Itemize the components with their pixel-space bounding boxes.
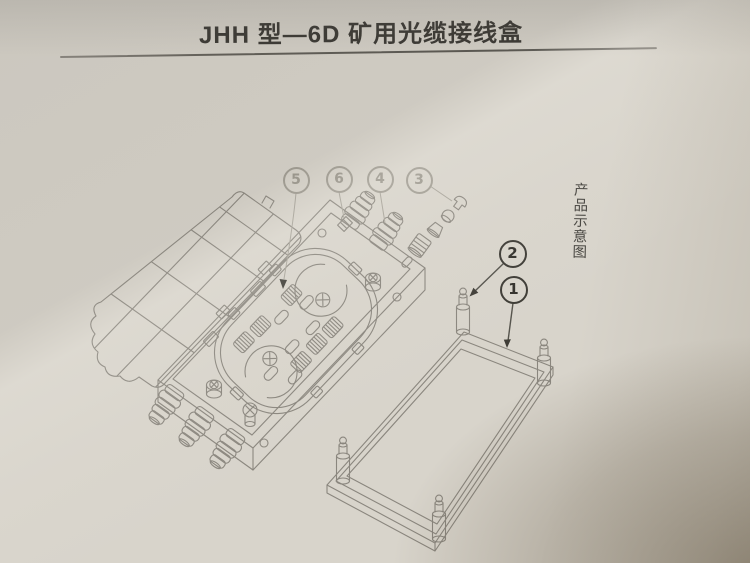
splice-tray — [190, 224, 402, 439]
cover-grid — [88, 183, 320, 397]
callout-3: 3 — [406, 167, 433, 194]
gland-dome — [440, 208, 457, 225]
cable-gland — [143, 382, 186, 429]
leader-line-4 — [380, 192, 385, 223]
corner-post — [433, 495, 446, 542]
leader-line-5 — [284, 193, 296, 279]
pan-screw — [243, 403, 257, 427]
cover-lid — [88, 183, 320, 397]
tray-slot — [298, 294, 315, 311]
cover-tab — [262, 196, 274, 208]
fiber-guide-arc — [284, 257, 354, 327]
callout-6: 6 — [326, 166, 353, 193]
cable-gland — [204, 426, 247, 473]
leader-line-1 — [508, 303, 513, 341]
gland-cap — [451, 194, 469, 212]
tray-screw — [313, 290, 333, 310]
cable-gland — [173, 404, 216, 451]
coil-spring — [306, 333, 329, 356]
gland-nut — [407, 233, 432, 259]
corner-post — [457, 288, 470, 335]
tray-slot — [284, 338, 301, 355]
cable-gland — [339, 187, 380, 232]
coil-spring — [233, 331, 256, 354]
coil-spring — [249, 315, 272, 338]
leader-line-3 — [430, 186, 452, 201]
tray-slot — [263, 365, 280, 382]
callout-4: 4 — [367, 166, 394, 193]
rim-slot — [401, 256, 414, 269]
tray-slot — [273, 309, 290, 326]
coil-spring — [290, 351, 313, 374]
exploded-diagram — [0, 0, 750, 563]
arrowhead-1 — [504, 339, 511, 348]
product-caption: 产品示意图 — [568, 182, 591, 260]
hex-standoff — [207, 380, 222, 398]
mount-hole — [318, 229, 326, 237]
gland-cone — [426, 221, 444, 239]
corner-post — [337, 437, 350, 484]
callout-1: 1 — [500, 276, 528, 304]
leader-line-6 — [339, 192, 344, 218]
coil-spring — [321, 316, 344, 339]
mount-hole — [260, 439, 268, 447]
callout-5: 5 — [283, 167, 310, 194]
tray-screw — [260, 349, 280, 369]
cable-gland — [367, 208, 408, 253]
photographed-page: JHH 型—6D 矿用光缆接线盒 — [0, 0, 750, 563]
arrowhead-5 — [280, 279, 288, 289]
base-frame — [327, 332, 553, 551]
callout-2: 2 — [499, 240, 527, 268]
